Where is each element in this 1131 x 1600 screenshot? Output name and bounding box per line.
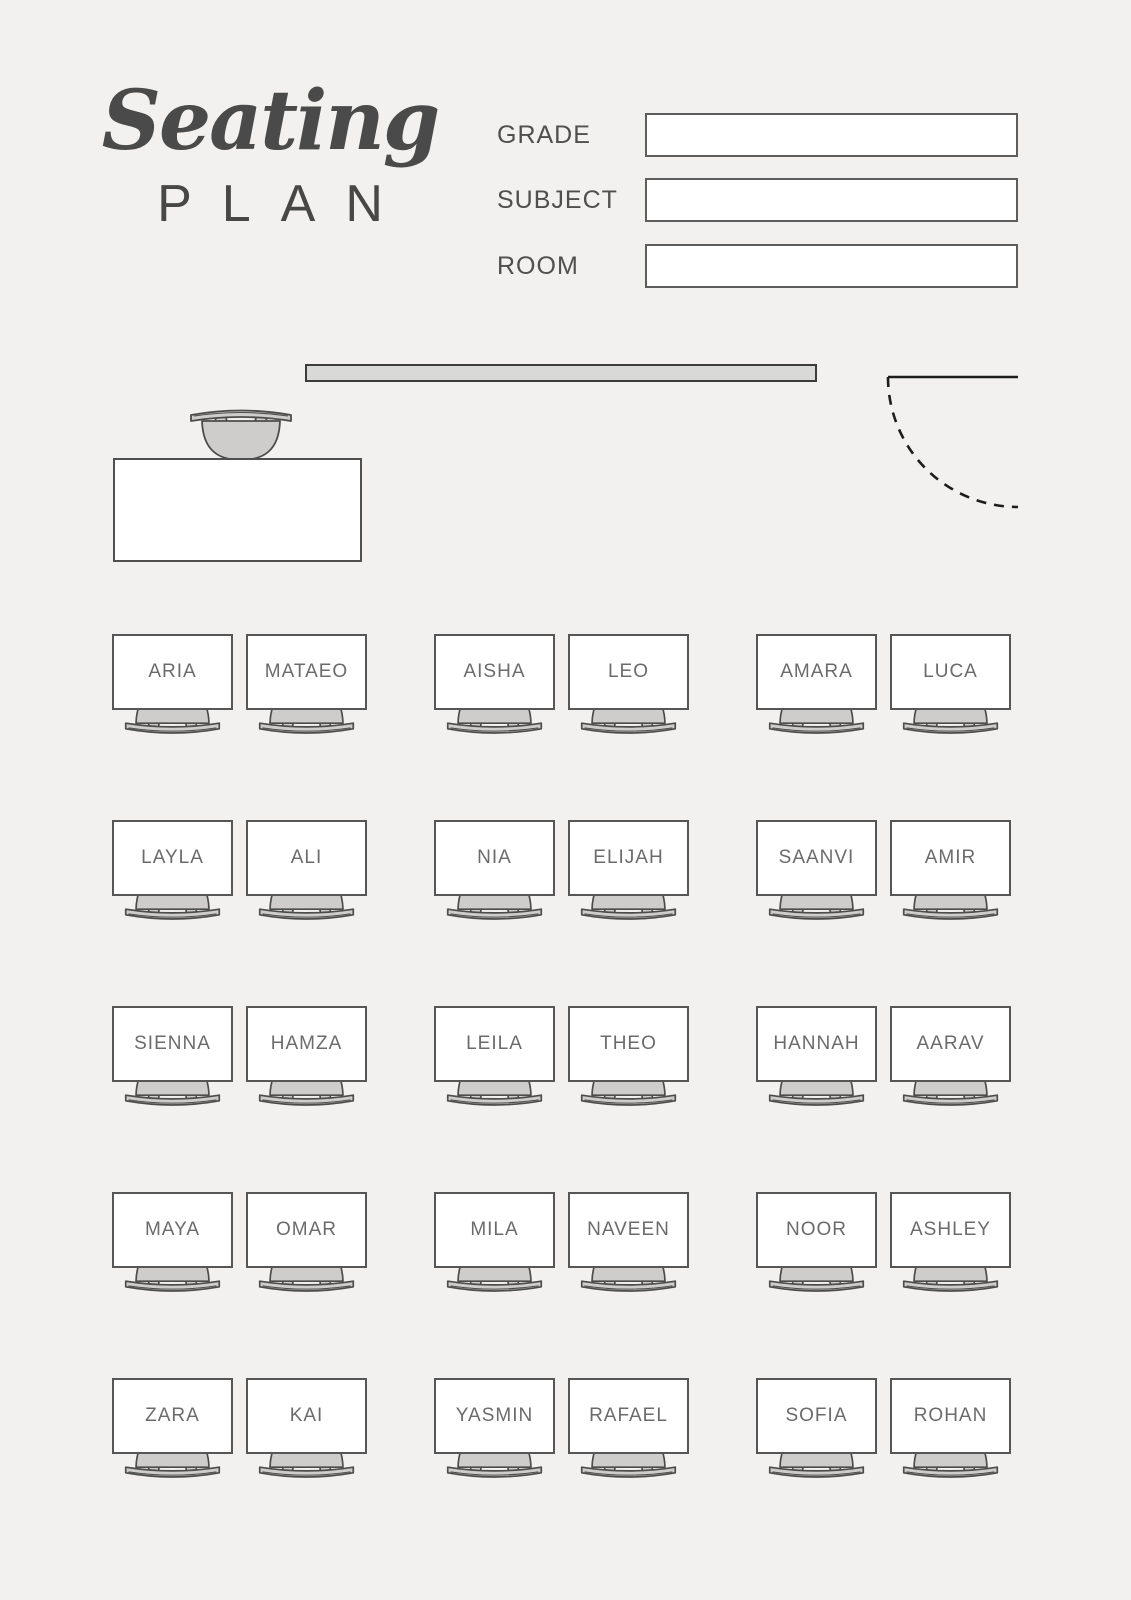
student-desk[interactable]: NAVEEN	[568, 1192, 689, 1268]
seat: AMIR	[890, 820, 1011, 932]
student-name: ASHLEY	[910, 1219, 991, 1241]
seat: LEILA	[434, 1006, 555, 1118]
teacher-desk	[113, 458, 362, 562]
student-name: YASMIN	[456, 1405, 533, 1427]
seat: YASMIN	[434, 1378, 555, 1490]
student-desk[interactable]: YASMIN	[434, 1378, 555, 1454]
student-desk[interactable]: KAI	[246, 1378, 367, 1454]
door-swing-icon	[870, 360, 1035, 525]
seat: THEO	[568, 1006, 689, 1118]
seat: LEO	[568, 634, 689, 746]
student-desk[interactable]: SAANVI	[756, 820, 877, 896]
student-desk[interactable]: SOFIA	[756, 1378, 877, 1454]
student-name: MATAEO	[265, 661, 348, 683]
student-desk[interactable]: AMARA	[756, 634, 877, 710]
student-name: LEO	[608, 661, 649, 683]
student-name: ARIA	[148, 661, 196, 683]
seat: SOFIA	[756, 1378, 877, 1490]
seat: ZARA	[112, 1378, 233, 1490]
student-name: AMIR	[925, 847, 977, 869]
student-desk[interactable]: HANNAH	[756, 1006, 877, 1082]
seat: NIA	[434, 820, 555, 932]
seating-plan-page: Seating PLAN GRADE SUBJECT ROOM ARIAMATA…	[0, 0, 1131, 1600]
subject-label: SUBJECT	[497, 178, 618, 222]
student-name: KAI	[290, 1405, 324, 1427]
seat: AARAV	[890, 1006, 1011, 1118]
student-desk[interactable]: LEO	[568, 634, 689, 710]
student-desk[interactable]: LAYLA	[112, 820, 233, 896]
seat: RAFAEL	[568, 1378, 689, 1490]
student-desk[interactable]: ZARA	[112, 1378, 233, 1454]
student-name: MAYA	[145, 1219, 200, 1241]
student-desk[interactable]: NOOR	[756, 1192, 877, 1268]
seat: ASHLEY	[890, 1192, 1011, 1304]
seat: ROHAN	[890, 1378, 1011, 1490]
page-title: Seating PLAN	[100, 78, 440, 230]
student-desk[interactable]: NIA	[434, 820, 555, 896]
seat: MILA	[434, 1192, 555, 1304]
student-name: SAANVI	[779, 847, 855, 869]
student-desk[interactable]: OMAR	[246, 1192, 367, 1268]
student-name: ELIJAH	[593, 847, 663, 869]
student-desk[interactable]: LUCA	[890, 634, 1011, 710]
student-desk[interactable]: ARIA	[112, 634, 233, 710]
student-name: OMAR	[276, 1219, 337, 1241]
student-desk[interactable]: MATAEO	[246, 634, 367, 710]
seat: MAYA	[112, 1192, 233, 1304]
title-seating: Seating	[100, 78, 440, 164]
student-name: ALI	[291, 847, 323, 869]
student-desk[interactable]: ALI	[246, 820, 367, 896]
student-desk[interactable]: MILA	[434, 1192, 555, 1268]
student-name: AMARA	[780, 661, 853, 683]
student-desk[interactable]: ROHAN	[890, 1378, 1011, 1454]
student-name: RAFAEL	[589, 1405, 668, 1427]
seat: HANNAH	[756, 1006, 877, 1118]
student-name: HAMZA	[271, 1033, 343, 1055]
student-name: NIA	[477, 847, 512, 869]
student-desk[interactable]: HAMZA	[246, 1006, 367, 1082]
seat: NAVEEN	[568, 1192, 689, 1304]
student-name: NAVEEN	[587, 1219, 670, 1241]
student-name: THEO	[600, 1033, 657, 1055]
student-name: HANNAH	[773, 1033, 859, 1055]
student-desk[interactable]: AARAV	[890, 1006, 1011, 1082]
student-name: LAYLA	[141, 847, 204, 869]
seat: ARIA	[112, 634, 233, 746]
student-desk[interactable]: AMIR	[890, 820, 1011, 896]
student-name: MILA	[470, 1219, 518, 1241]
student-name: LEILA	[466, 1033, 523, 1055]
student-desk[interactable]: ASHLEY	[890, 1192, 1011, 1268]
seat: NOOR	[756, 1192, 877, 1304]
seat: MATAEO	[246, 634, 367, 746]
seat: ALI	[246, 820, 367, 932]
seat: SAANVI	[756, 820, 877, 932]
subject-input[interactable]	[645, 178, 1018, 222]
student-desk[interactable]: AISHA	[434, 634, 555, 710]
seat: LAYLA	[112, 820, 233, 932]
student-desk[interactable]: LEILA	[434, 1006, 555, 1082]
student-desk[interactable]: MAYA	[112, 1192, 233, 1268]
room-input[interactable]	[645, 244, 1018, 288]
student-desk[interactable]: ELIJAH	[568, 820, 689, 896]
student-name: AISHA	[463, 661, 525, 683]
room-label: ROOM	[497, 244, 579, 288]
student-name: AARAV	[916, 1033, 984, 1055]
grade-input[interactable]	[645, 113, 1018, 157]
seat: AMARA	[756, 634, 877, 746]
seat: OMAR	[246, 1192, 367, 1304]
whiteboard-bar	[305, 364, 817, 382]
student-name: SIENNA	[134, 1033, 211, 1055]
title-plan: PLAN	[100, 178, 440, 230]
seat: KAI	[246, 1378, 367, 1490]
seat: ELIJAH	[568, 820, 689, 932]
teacher-chair-icon	[181, 403, 301, 465]
seat: SIENNA	[112, 1006, 233, 1118]
student-desk[interactable]: SIENNA	[112, 1006, 233, 1082]
grade-label: GRADE	[497, 113, 591, 157]
student-name: NOOR	[786, 1219, 847, 1241]
seat: HAMZA	[246, 1006, 367, 1118]
student-desk[interactable]: THEO	[568, 1006, 689, 1082]
student-name: ZARA	[145, 1405, 200, 1427]
seat: LUCA	[890, 634, 1011, 746]
seat: AISHA	[434, 634, 555, 746]
student-name: SOFIA	[785, 1405, 847, 1427]
student-name: ROHAN	[914, 1405, 988, 1427]
student-name: LUCA	[923, 661, 978, 683]
student-desk[interactable]: RAFAEL	[568, 1378, 689, 1454]
